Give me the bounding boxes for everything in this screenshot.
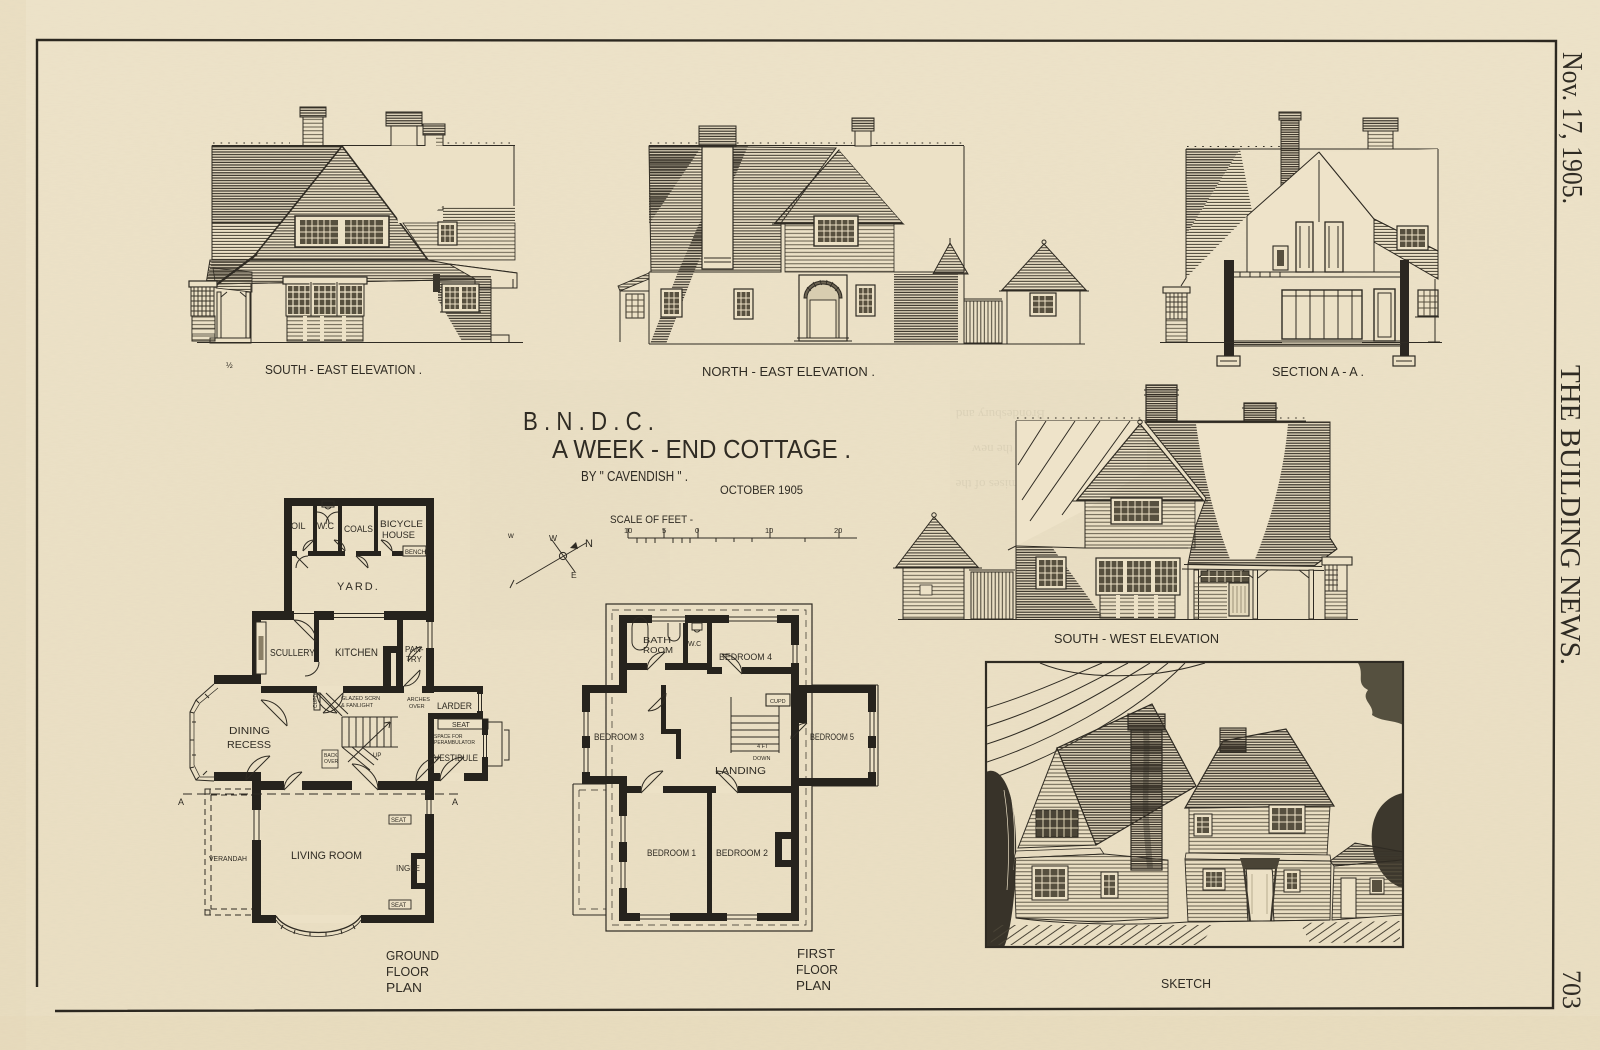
svg-text:RECESS: RECESS	[227, 740, 271, 751]
svg-text:BY " CAVENDISH " .: BY " CAVENDISH " .	[581, 468, 688, 485]
svg-text:½: ½	[226, 361, 233, 370]
svg-text:SOUTH - EAST ELEVATION .: SOUTH - EAST ELEVATION .	[265, 362, 422, 377]
svg-text:ARCHES: ARCHES	[407, 697, 430, 703]
svg-text:SEAT: SEAT	[391, 903, 407, 909]
svg-text:FLOOR: FLOOR	[386, 964, 429, 979]
svg-text:A: A	[452, 797, 458, 807]
svg-text:LANDING: LANDING	[715, 766, 766, 777]
svg-text:THE BUILDING NEWS.: THE BUILDING NEWS.	[1554, 365, 1585, 665]
svg-text:SKETCH: SKETCH	[1161, 976, 1211, 991]
svg-text:A WEEK - END COTTAGE .: A WEEK - END COTTAGE .	[552, 434, 851, 464]
svg-text:FLOOR: FLOOR	[796, 962, 838, 977]
svg-text:KITCHEN: KITCHEN	[335, 647, 378, 659]
svg-text:W.C: W.C	[688, 641, 701, 648]
svg-text:GROUND: GROUND	[386, 948, 439, 963]
svg-text:DINING: DINING	[229, 726, 270, 737]
svg-text:B . N . D . C .: B . N . D . C .	[523, 406, 654, 436]
svg-text:703: 703	[1557, 970, 1586, 1009]
svg-text:BICYCLE: BICYCLE	[380, 519, 423, 529]
svg-text:BATH: BATH	[643, 636, 671, 645]
svg-text:SEAT: SEAT	[452, 722, 470, 729]
svg-text:LIVING ROOM: LIVING ROOM	[291, 850, 362, 862]
svg-text:BEDROOM 4: BEDROOM 4	[719, 652, 772, 662]
svg-text:BEDROOM 1: BEDROOM 1	[647, 848, 696, 858]
svg-text:OVER: OVER	[324, 759, 339, 765]
svg-text:BEDROOM 3: BEDROOM 3	[594, 732, 644, 742]
svg-text:OIL: OIL	[291, 521, 306, 531]
svg-text:0: 0	[695, 526, 699, 535]
svg-text:SCALE OF FEET -: SCALE OF FEET -	[610, 514, 693, 526]
svg-text:VESTIBULE: VESTIBULE	[434, 753, 478, 763]
svg-text:W: W	[549, 533, 557, 543]
svg-text:INGLE: INGLE	[396, 864, 420, 873]
svg-text:OCTOBER 1905: OCTOBER 1905	[720, 483, 803, 497]
svg-text:W.C: W.C	[317, 521, 334, 531]
svg-text:OVER: OVER	[409, 704, 425, 710]
svg-text:UP: UP	[373, 753, 381, 759]
svg-text:CUPD: CUPD	[770, 699, 786, 705]
svg-text:5: 5	[662, 526, 666, 535]
svg-text:BEDROOM 5: BEDROOM 5	[810, 732, 854, 742]
svg-text:PERAMBULATOR: PERAMBULATOR	[434, 740, 475, 746]
svg-text:10: 10	[765, 526, 773, 535]
svg-text:BEDROOM 2: BEDROOM 2	[716, 848, 768, 858]
svg-text:VERANDAH: VERANDAH	[209, 856, 247, 863]
svg-text:COALS: COALS	[344, 524, 373, 534]
svg-text:& FANLIGHT: & FANLIGHT	[341, 703, 374, 709]
svg-text:PAN-: PAN-	[405, 645, 424, 654]
svg-text:PLAN: PLAN	[386, 980, 422, 995]
svg-text:N: N	[585, 538, 593, 550]
svg-text:4 FT: 4 FT	[757, 744, 769, 750]
svg-text:TRY: TRY	[406, 655, 423, 664]
svg-text:HOUSE: HOUSE	[382, 530, 415, 540]
svg-text:DOWN: DOWN	[753, 756, 770, 762]
svg-text:GLAZED SCRN: GLAZED SCRN	[341, 696, 380, 702]
svg-text:SEAT: SEAT	[391, 818, 407, 824]
svg-text:FIRST: FIRST	[797, 946, 835, 961]
svg-text:SOUTH - WEST ELEVATION: SOUTH - WEST ELEVATION	[1054, 631, 1219, 646]
svg-text:SECTION A - A .: SECTION A - A .	[1272, 364, 1364, 379]
svg-text:PLAN: PLAN	[796, 978, 831, 993]
svg-text:Nov. 17, 1905.: Nov. 17, 1905.	[1556, 52, 1588, 204]
svg-text:NORTH - EAST ELEVATION .: NORTH - EAST ELEVATION .	[702, 364, 875, 379]
svg-text:ROOM: ROOM	[643, 646, 673, 655]
svg-text:YARD.: YARD.	[337, 581, 380, 593]
svg-text:E: E	[571, 570, 577, 580]
svg-text:BENCH: BENCH	[405, 550, 426, 556]
svg-text:SCULLERY: SCULLERY	[270, 648, 315, 659]
svg-text:10: 10	[624, 526, 632, 535]
svg-text:A: A	[178, 797, 184, 807]
svg-text:w: w	[507, 531, 514, 540]
svg-text:20: 20	[834, 526, 842, 535]
svg-text:LARDER: LARDER	[437, 701, 472, 711]
